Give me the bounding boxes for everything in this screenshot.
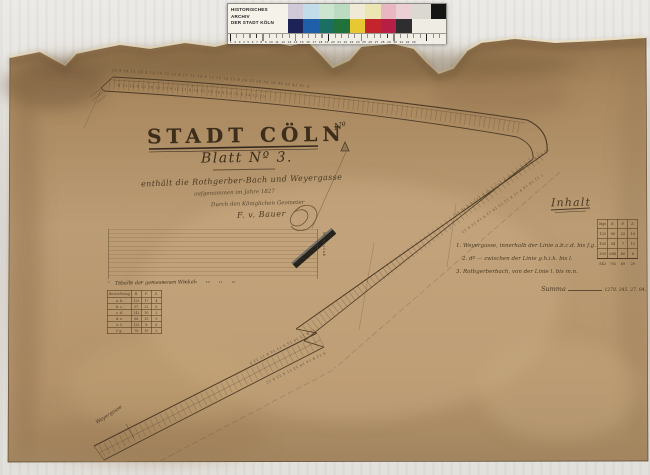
- color-patch: [334, 4, 350, 19]
- inhalt-col-header: F.: [618, 220, 628, 229]
- table-sum-row: 542792 6929: [598, 259, 638, 269]
- table-row: 10554 711: [598, 239, 638, 249]
- color-patch: [303, 19, 319, 34]
- left-col-header: F.: [141, 291, 151, 298]
- color-patch-strip: [288, 4, 447, 33]
- color-calibration-card: HISTORISCHES ARCHIV DER STADT KÖLN 1 2 3…: [227, 3, 447, 44]
- color-patch: [381, 19, 397, 34]
- inhalt-col-header: Mgn: [598, 220, 608, 229]
- table-row: f. g.76 193: [108, 328, 162, 334]
- ruler-strip: 1 2 3 4 5 6 7 8 9 10 11 12 13 14 15 16 1…: [228, 33, 446, 44]
- color-patch-white: [412, 4, 431, 19]
- color-patch: [303, 4, 319, 19]
- summa-values: 1278. 345. 27. 04.: [604, 288, 646, 293]
- diagonal-scale-label: Maasstab: [322, 232, 326, 257]
- color-patch: [288, 4, 304, 19]
- inhalt-item-3: 3. Rothgerberbach, von der Linie l. bis …: [456, 269, 578, 275]
- color-patch: [319, 4, 335, 19]
- summa-label: Summa: [541, 285, 566, 293]
- color-patch: [350, 4, 366, 19]
- color-patch: [350, 19, 366, 34]
- aged-paper: 12 9 14 11 16 8 13 10 15 12 9 17 11 14 8…: [3, 37, 650, 465]
- color-patch: [288, 19, 304, 34]
- color-patch: [381, 4, 397, 19]
- color-patch: [334, 19, 350, 34]
- color-patch: [319, 19, 335, 34]
- sheet-number: Blatt Nº 3.: [201, 149, 293, 166]
- map-title: STADT CÖLN: [147, 122, 346, 149]
- archive-label-line1: HISTORISCHES ARCHIV: [231, 7, 286, 20]
- left-col-header: Z.: [151, 291, 161, 298]
- inhalt-col-header: Z.: [628, 220, 638, 229]
- inhalt-item-1: 1. Weyergasse, innerhalb der Linie a.b.c…: [456, 243, 596, 249]
- left-col-header: R.: [131, 291, 141, 298]
- color-patch: [365, 4, 381, 19]
- measurement-table: Bezeichnung R. F. Z. a. b.125 174 b. c.9…: [107, 290, 162, 334]
- color-patch-black: [431, 4, 447, 19]
- summa-line: Summa 1278. 345. 27. 04.: [541, 285, 646, 293]
- summa-rule: [568, 290, 603, 291]
- inhalt-item-2: 2. dº — zwischen der Linie g.h.i.k. bis …: [462, 256, 573, 262]
- color-patch: [365, 19, 381, 34]
- color-patch: [396, 4, 412, 19]
- archive-label: HISTORISCHES ARCHIV DER STADT KÖLN: [228, 4, 288, 33]
- archive-label-line2: DER STADT KÖLN: [231, 20, 286, 27]
- color-patch: [396, 19, 412, 34]
- inhalt-col-header: R.: [608, 220, 618, 229]
- surveyor-signature: F. v. Bauer: [237, 209, 286, 220]
- inhalt-area-table: Mgn R. F. Z. 13290 2210 10554 711 305648…: [597, 219, 638, 269]
- ruler-numbers: 1 2 3 4 5 6 7 8 9 10 11 12 13 14 15 16 1…: [230, 40, 444, 44]
- diagonal-scale-grid: [108, 229, 318, 279]
- north-label: Nº: [333, 121, 347, 133]
- scanned-map-page: 12 9 14 11 16 8 13 10 15 12 9 17 11 14 8…: [0, 0, 650, 475]
- left-col-header: Bezeichnung: [108, 291, 132, 298]
- table-row: 13290 2210: [598, 229, 638, 239]
- table-row: 305648 408: [598, 249, 638, 259]
- inhalt-heading: Inhalt: [551, 196, 591, 210]
